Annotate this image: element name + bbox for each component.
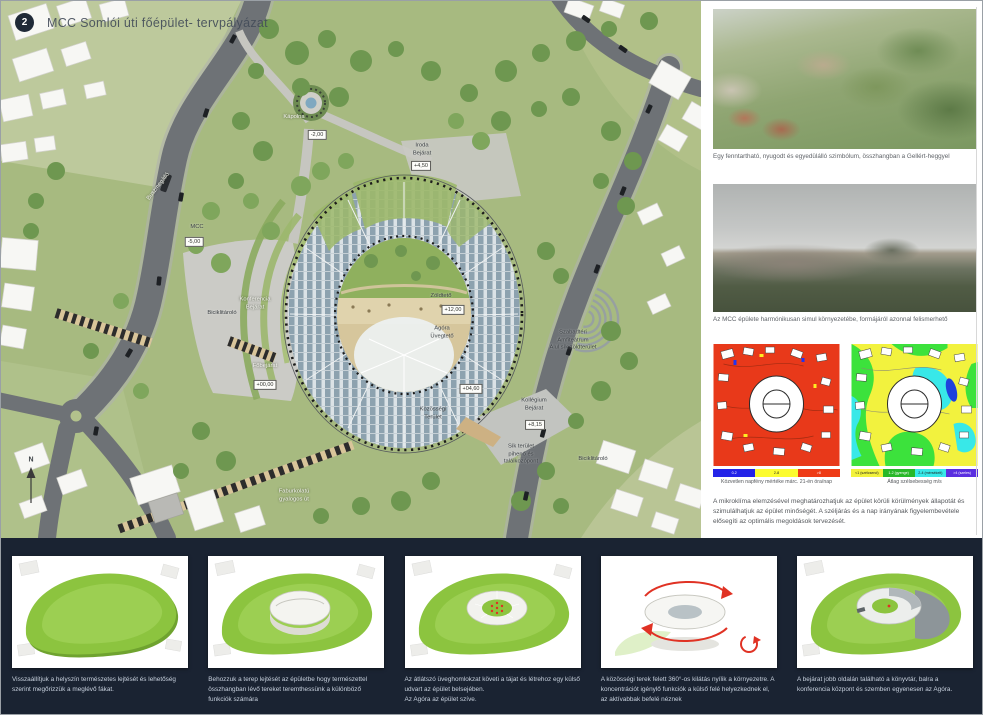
plan-elev-office: +4,50 bbox=[411, 161, 431, 171]
plan-elev-agora: +04,60 bbox=[460, 384, 483, 394]
sun-simulation-map bbox=[713, 344, 840, 466]
concept-caption-entrances: A bejárat jobb oldalán található a könyv… bbox=[797, 675, 973, 695]
concept-card-slope: Behozzuk a terep lejtését az épületbe ho… bbox=[208, 556, 384, 715]
concept-card-terrain: Visszaállítjuk a helyszín természetes le… bbox=[12, 556, 188, 715]
concept-card-entrances: A bejárat jobb oldalán található a könyv… bbox=[797, 556, 973, 715]
plan-elev-main-entrance: +00,00 bbox=[254, 380, 277, 390]
sun-simulation-caption: Közvetlen napfény mértéke márc. 21-én ór… bbox=[713, 479, 840, 485]
wind-legend-windy: >4 (szeles) bbox=[946, 469, 978, 477]
wind-legend: <1 (szélcsend) 1-2 (gyenge) 2-4 (mérséke… bbox=[851, 469, 978, 477]
simulation-maps: 0-2 2-8 >8 Közvetlen napfény mértéke már… bbox=[713, 344, 979, 485]
concept-card-courtyard: Az átlátszó üveghomlokzat követi a tájat… bbox=[405, 556, 581, 715]
concept-caption-panorama: A közösségi terek felett 360°-os kilátás… bbox=[601, 675, 777, 705]
wind-legend-moderate: 2-4 (mérsékelt) bbox=[915, 469, 947, 477]
board-title: MCC Somlói úti főépület- tervpályázat bbox=[47, 16, 268, 30]
sun-legend: 0-2 2-8 >8 bbox=[713, 469, 840, 477]
concept-strip: Visszaállítjuk a helyszín természetes le… bbox=[1, 538, 983, 715]
wind-simulation: <1 (szélcsend) 1-2 (gyenge) 2-4 (mérséke… bbox=[851, 344, 978, 485]
concept-diagram-terrain bbox=[12, 556, 188, 668]
sun-legend-high: >8 bbox=[798, 469, 840, 477]
plan-elev-mcc: -5,00 bbox=[185, 237, 204, 247]
sun-simulation: 0-2 2-8 >8 Közvetlen napfény mértéke már… bbox=[713, 344, 840, 485]
concept-diagram-panorama bbox=[601, 556, 777, 668]
concept-caption-terrain: Visszaállítjuk a helyszín természetes le… bbox=[12, 675, 188, 695]
plan-elev-chapel: -2,00 bbox=[308, 130, 327, 140]
site-plan-drawing bbox=[1, 1, 701, 538]
presentation-board: 2 MCC Somlói úti főépület- tervpályázat … bbox=[0, 0, 983, 715]
plan-elev-dormitory: +8,15 bbox=[525, 420, 545, 430]
wind-simulation-map bbox=[851, 344, 978, 466]
plan-elev-green-roof: +12,00 bbox=[442, 305, 465, 315]
concept-diagram-slope bbox=[208, 556, 384, 668]
wind-legend-light: 1-2 (gyenge) bbox=[883, 469, 915, 477]
wind-simulation-caption: Átlag szélsebesség m/s bbox=[851, 479, 978, 485]
concept-diagram-entrances bbox=[797, 556, 973, 668]
sun-legend-mid: 2-8 bbox=[755, 469, 797, 477]
concept-caption-courtyard: Az átlátszó üveghomlokzat követi a tájat… bbox=[405, 675, 581, 705]
concept-caption-slope: Behozzuk a terep lejtését az épületbe ho… bbox=[208, 675, 384, 705]
sun-legend-low: 0-2 bbox=[713, 469, 755, 477]
concept-card-panorama: A közösségi terek felett 360°-os kilátás… bbox=[601, 556, 777, 715]
photo-aerial-city bbox=[713, 9, 976, 149]
wind-legend-calm: <1 (szélcsend) bbox=[851, 469, 883, 477]
right-column: Egy fenntartható, nyugodt és egyedülálló… bbox=[707, 1, 983, 538]
photo-panorama bbox=[713, 184, 976, 312]
board-number-badge: 2 bbox=[15, 13, 34, 32]
photo-panorama-caption: Az MCC épülete harmónikusan simul környe… bbox=[713, 316, 976, 325]
concept-diagram-courtyard bbox=[405, 556, 581, 668]
photo-aerial-caption: Egy fenntartható, nyugodt és egyedülálló… bbox=[713, 153, 976, 162]
site-plan: 2 MCC Somlói úti főépület- tervpályázat … bbox=[1, 1, 701, 538]
microclimate-paragraph: A mikroklíma elemzésével meghatározhatju… bbox=[713, 497, 975, 527]
